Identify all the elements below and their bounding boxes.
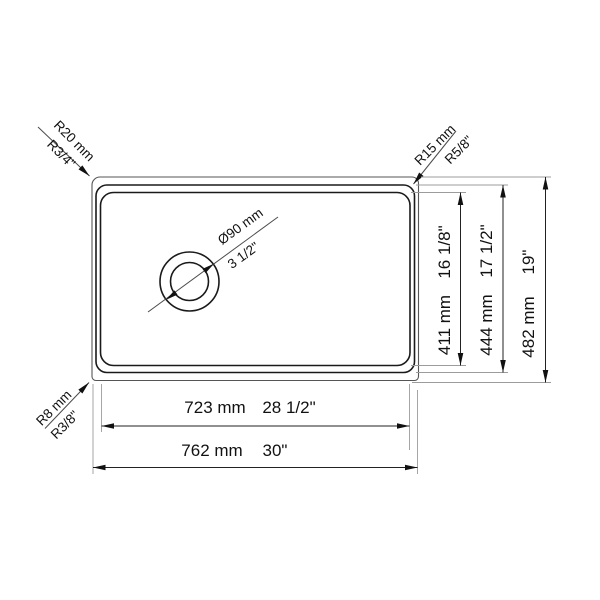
dimension-height-inner-411: 411 mm 16 1/8" <box>411 193 466 366</box>
dimension-width-outer-762: 762 mm 30" <box>93 384 418 474</box>
drawing-canvas: Ø90 mm 3 1/2" R20 mm R3/4" R15 mm R5/8" … <box>0 0 600 600</box>
label-482-inch: 19" <box>519 250 538 275</box>
dimension-height-rim-444: 444 mm 17 1/2" <box>416 185 508 373</box>
label-411-inch: 16 1/8" <box>435 225 454 278</box>
radius-callout-bottom-left: R8 mm R3/8" <box>33 383 89 442</box>
drain-annotation: Ø90 mm 3 1/2" <box>148 205 278 312</box>
drain-label-mm: Ø90 mm <box>215 205 266 248</box>
radius-callout-top-left: R20 mm R3/4" <box>38 117 98 176</box>
sink-technical-drawing: Ø90 mm 3 1/2" R20 mm R3/4" R15 mm R5/8" … <box>0 0 600 600</box>
label-762-inch: 30" <box>263 441 288 460</box>
label-723-mm: 723 mm <box>184 398 245 417</box>
label-482-mm: 482 mm <box>519 296 538 357</box>
drain-label-inch: 3 1/2" <box>225 239 262 272</box>
label-762-mm: 762 mm <box>181 441 242 460</box>
label-723-inch: 28 1/2" <box>262 398 315 417</box>
label-444-mm: 444 mm <box>477 294 496 355</box>
radius-callout-top-right: R15 mm R5/8" <box>411 121 476 184</box>
dimension-width-inner-723: 723 mm 28 1/2" <box>102 384 410 450</box>
label-444-inch: 17 1/2" <box>477 224 496 277</box>
label-411-mm: 411 mm <box>435 295 454 355</box>
